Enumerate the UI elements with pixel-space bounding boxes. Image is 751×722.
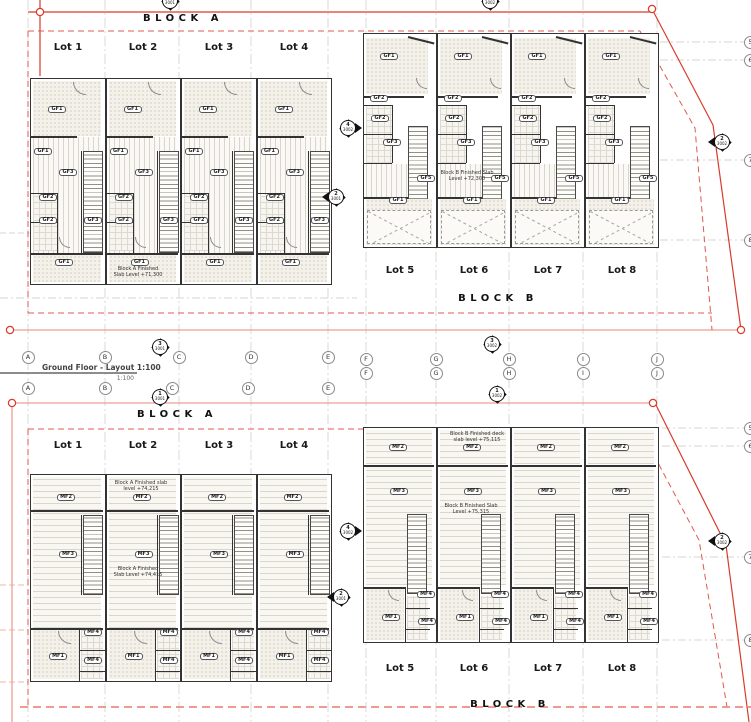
interior-wall xyxy=(79,630,80,681)
interior-wall xyxy=(107,253,179,255)
interior-wall xyxy=(540,105,541,163)
room-tag: GF2 xyxy=(39,194,57,201)
interior-wall xyxy=(208,193,209,253)
interior-wall xyxy=(438,134,466,135)
room-area xyxy=(33,81,101,136)
interior-wall xyxy=(479,587,480,642)
room-area xyxy=(184,81,252,136)
room-tag: MF2 xyxy=(208,494,226,501)
lot-label: Lot 3 xyxy=(197,440,241,451)
interior-wall xyxy=(308,151,309,254)
interior-wall xyxy=(157,515,158,595)
room-tag: MF4 xyxy=(492,618,510,625)
block-b-label-ground: BLOCK B xyxy=(433,293,563,304)
floor-plan-sheet: BLOCK A BLOCK B BLOCK A BLOCK B Ground F… xyxy=(0,0,751,722)
interior-wall xyxy=(512,105,540,106)
sheet-number: 3002 xyxy=(343,531,353,536)
room-tag: GF2 xyxy=(593,115,611,122)
interior-wall xyxy=(627,587,628,642)
room-tag: GF2 xyxy=(266,217,284,224)
room-tag: MF4 xyxy=(235,629,253,636)
room-tag: GF1 xyxy=(611,197,629,204)
room-tag: MF4 xyxy=(491,591,509,598)
grid-bubble-num-7: 7 xyxy=(744,551,751,564)
interior-wall xyxy=(31,253,103,255)
interior-wall xyxy=(57,193,58,253)
room-tag: GF2 xyxy=(115,217,133,224)
interior-wall xyxy=(364,587,406,589)
block-a-label-ground: BLOCK A xyxy=(118,13,248,24)
section-marker-bubble: 13001 xyxy=(152,389,168,405)
interior-wall xyxy=(155,650,181,651)
room-tag: GF2 xyxy=(371,115,389,122)
view-title-underline xyxy=(0,372,137,374)
grid-bubble-F: F xyxy=(360,353,373,366)
block-a-label-first: BLOCK A xyxy=(112,409,242,420)
interior-wall xyxy=(586,163,614,164)
lot-label: Lot 6 xyxy=(452,663,496,674)
block-b-label-first: BLOCK B xyxy=(445,699,575,710)
staircase xyxy=(234,515,254,595)
interior-wall xyxy=(438,587,480,589)
room-tag: MF1 xyxy=(125,653,143,660)
staircase xyxy=(481,514,501,594)
room-tag: GF3 xyxy=(160,217,178,224)
room-tag: GF1 xyxy=(463,197,481,204)
deck-note-first-block-a: Block A Finished slab level +74,215 xyxy=(108,480,174,493)
room-tag: MF1 xyxy=(530,614,548,621)
dwelling-unit: GF1GF2GF2GF3GF5GF1 xyxy=(363,33,437,248)
room-tag: MF4 xyxy=(311,629,329,636)
interior-wall xyxy=(627,629,652,630)
dwelling-unit: MF2MF3MF4MF1MF4 xyxy=(30,474,106,682)
room-tag: GF1 xyxy=(185,148,203,155)
grid-bubble-E: E xyxy=(322,351,335,364)
room-tag: GF1 xyxy=(110,148,128,155)
deck-note-first-block-b: Block B Finished deck slab level +75,115 xyxy=(444,431,510,444)
interior-wall xyxy=(107,136,153,138)
interior-wall xyxy=(512,134,540,135)
room-tag: GF2 xyxy=(518,95,536,102)
room-tag: MF2 xyxy=(284,494,302,501)
parking-bay xyxy=(589,210,653,244)
interior-wall xyxy=(31,136,77,138)
section-marker: 23002 xyxy=(712,531,732,551)
grid-bubble-B: B xyxy=(99,351,112,364)
room-tag: MF3 xyxy=(390,488,408,495)
room-tag: GF2 xyxy=(266,194,284,201)
grid-bubble-num-7: 7 xyxy=(744,154,751,167)
sheet-number: 3002 xyxy=(492,394,502,399)
lot-label: Lot 4 xyxy=(272,42,316,53)
interior-wall xyxy=(230,650,256,651)
room-tag: GF1 xyxy=(261,148,279,155)
interior-wall xyxy=(614,105,615,163)
room-tag: MF2 xyxy=(463,444,481,451)
sheet-number: 3002 xyxy=(343,128,353,133)
lot-label: Lot 1 xyxy=(46,42,90,53)
section-marker: 13002 xyxy=(487,384,507,404)
dwelling-unit: MF2MF3MF4MF1MF4 xyxy=(181,474,257,682)
parking-bay xyxy=(367,210,431,244)
interior-wall xyxy=(155,630,156,681)
grid-bubble-num-8: 8 xyxy=(744,234,751,247)
slab-note-ground-block-b: Block B Finished Slab Level +72,300 xyxy=(434,170,500,183)
staircase xyxy=(310,515,330,595)
lot-label: Lot 1 xyxy=(46,440,90,451)
room-tag: GF3 xyxy=(135,169,153,176)
sheet-number: 3001 xyxy=(155,397,165,402)
interior-wall xyxy=(586,134,614,135)
interior-wall xyxy=(81,151,82,254)
room-tag: GF1 xyxy=(537,197,555,204)
grid-bubble-num-5: 5 xyxy=(744,36,751,49)
grid-bubble-I: I xyxy=(577,353,590,366)
staircase xyxy=(408,126,428,200)
room-tag: MF4 xyxy=(160,629,178,636)
section-marker: 23002 xyxy=(712,132,732,152)
room-tag: MF4 xyxy=(566,618,584,625)
grid-bubble-C: C xyxy=(173,351,186,364)
room-tag: MF4 xyxy=(235,657,253,664)
grid-bubble-num-6: 6 xyxy=(744,54,751,67)
dwelling-unit: GF1GF2GF2GF3GF5GF1 xyxy=(437,33,511,248)
room-tag: GF1 xyxy=(48,106,66,113)
slab-note-ground-block-a: Block A Finished Slab Level +71,300 xyxy=(105,266,171,279)
interior-wall xyxy=(479,608,504,609)
dwelling-unit: MF2MF3MF4MF1MF4 xyxy=(363,427,437,643)
grid-bubble-num-6: 6 xyxy=(744,440,751,453)
section-marker: 33001 xyxy=(160,0,180,11)
interior-wall xyxy=(306,671,332,672)
staircase xyxy=(83,151,103,253)
room-tag: MF4 xyxy=(418,618,436,625)
grid-bubble-D: D xyxy=(242,382,255,395)
dwelling-unit: MF2MF3MF4MF1MF4 xyxy=(257,474,333,682)
room-tag: GF3 xyxy=(605,139,623,146)
dwelling-unit: GF1GF2GF2GF3GF5GF1 xyxy=(585,33,659,248)
grid-bubble-J: J xyxy=(651,353,664,366)
room-tag: GF1 xyxy=(380,53,398,60)
grid-bubble-num-5: 5 xyxy=(744,422,751,435)
grid-bubble-A: A xyxy=(22,351,35,364)
slab-note-first-block-b: Block B Finished Slab Level +75,315 xyxy=(438,503,504,516)
section-marker: 33002 xyxy=(480,0,500,11)
room-tag: MF3 xyxy=(286,551,304,558)
room-tag: MF1 xyxy=(456,614,474,621)
section-marker-bubble: 23002 xyxy=(714,533,730,549)
room-tag: MF1 xyxy=(604,614,622,621)
room-tag: MF3 xyxy=(464,488,482,495)
room-tag: GF2 xyxy=(190,217,208,224)
interior-wall xyxy=(364,163,392,164)
room-tag: GF3 xyxy=(311,217,329,224)
staircase xyxy=(482,126,502,200)
section-marker-bubble: 13002 xyxy=(489,386,505,402)
room-tag: GF1 xyxy=(199,106,217,113)
interior-wall xyxy=(405,629,430,630)
room-tag: MF1 xyxy=(49,653,67,660)
sheet-number: 3002 xyxy=(717,541,727,546)
grid-bubble-F: F xyxy=(360,367,373,380)
room-tag: GF1 xyxy=(206,259,224,266)
room-tag: GF3 xyxy=(286,169,304,176)
interior-wall xyxy=(405,587,406,642)
room-tag: GF5 xyxy=(639,175,657,182)
grid-bubble-J: J xyxy=(651,367,664,380)
room-tag: GF3 xyxy=(457,139,475,146)
sheet-number: 3002 xyxy=(485,1,495,6)
lot-label: Lot 4 xyxy=(272,440,316,451)
dwelling-unit: GF1GF1GF3GF2GF2GF3GF1 xyxy=(181,78,257,285)
room-tag: MF1 xyxy=(382,614,400,621)
sheet-number: 3002 xyxy=(487,344,497,349)
interior-wall xyxy=(364,105,392,106)
interior-wall xyxy=(133,193,134,253)
lot-label: Lot 6 xyxy=(452,265,496,276)
parking-bay xyxy=(441,210,505,244)
section-marker: 43002 xyxy=(338,118,358,138)
room-area xyxy=(588,164,630,197)
sheet-number: 3001 xyxy=(336,597,346,602)
section-marker-bubble: 23002 xyxy=(714,134,730,150)
interior-wall xyxy=(405,608,430,609)
staircase xyxy=(234,151,254,253)
interior-wall xyxy=(627,608,652,609)
room-tag: GF2 xyxy=(39,217,57,224)
room-tag: MF4 xyxy=(639,591,657,598)
room-area xyxy=(260,81,328,136)
interior-wall xyxy=(79,671,105,672)
grid-bubble-H: H xyxy=(503,353,516,366)
room-tag: MF2 xyxy=(537,444,555,451)
interior-wall xyxy=(79,650,105,651)
room-tag: MF2 xyxy=(57,494,75,501)
room-tag: GF2 xyxy=(190,194,208,201)
room-tag: GF1 xyxy=(131,259,149,266)
interior-wall xyxy=(230,671,256,672)
room-tag: GF2 xyxy=(370,95,388,102)
room-tag: GF2 xyxy=(444,95,462,102)
lot-label: Lot 3 xyxy=(197,42,241,53)
room-tag: GF5 xyxy=(417,175,435,182)
grid-bubble-A: A xyxy=(22,382,35,395)
room-tag: GF2 xyxy=(519,115,537,122)
interior-wall xyxy=(553,587,554,642)
interior-wall xyxy=(182,253,254,255)
room-tag: MF3 xyxy=(135,551,153,558)
sheet-number: 3001 xyxy=(331,197,341,202)
room-tag: GF2 xyxy=(115,194,133,201)
section-marker: 33002 xyxy=(482,334,502,354)
interior-wall xyxy=(306,650,332,651)
grid-bubble-D: D xyxy=(245,351,258,364)
room-tag: MF2 xyxy=(133,494,151,501)
dwelling-unit: GF1GF1GF3GF2GF2GF3GF1 xyxy=(257,78,333,285)
lot-label: Lot 5 xyxy=(378,265,422,276)
section-marker-bubble: 33001 xyxy=(152,339,168,355)
lot-label: Lot 7 xyxy=(526,265,570,276)
dwelling-unit: GF1GF1GF3GF2GF2GF3GF1 xyxy=(30,78,106,285)
room-tag: GF1 xyxy=(34,148,52,155)
section-arrow-right xyxy=(355,123,362,133)
staircase xyxy=(629,514,649,594)
room-area xyxy=(514,164,556,197)
room-tag: MF3 xyxy=(59,551,77,558)
grid-bubble-G: G xyxy=(430,353,443,366)
room-tag: MF4 xyxy=(160,657,178,664)
section-marker: 13001 xyxy=(150,387,170,407)
interior-wall xyxy=(553,629,578,630)
lot-label: Lot 2 xyxy=(121,42,165,53)
room-tag: GF5 xyxy=(565,175,583,182)
section-marker: 23001 xyxy=(326,187,346,207)
room-area xyxy=(366,164,408,197)
lot-label: Lot 2 xyxy=(121,440,165,451)
grid-bubble-num-8: 8 xyxy=(744,634,751,647)
dwelling-unit: MF2MF3MF4MF1MF4 xyxy=(511,427,585,643)
room-tag: GF3 xyxy=(210,169,228,176)
interior-wall xyxy=(479,629,504,630)
lot-label: Lot 7 xyxy=(526,663,570,674)
room-tag: MF2 xyxy=(611,444,629,451)
staircase xyxy=(83,515,103,595)
room-tag: GF2 xyxy=(592,95,610,102)
interior-wall xyxy=(232,151,233,254)
grid-bubble-I: I xyxy=(577,367,590,380)
room-tag: GF3 xyxy=(235,217,253,224)
section-marker: 33001 xyxy=(150,337,170,357)
interior-wall xyxy=(586,105,614,106)
staircase xyxy=(556,126,576,200)
room-tag: MF1 xyxy=(200,653,218,660)
interior-wall xyxy=(232,515,233,595)
interior-wall xyxy=(512,587,554,589)
grid-bubble-E: E xyxy=(322,382,335,395)
room-tag: MF3 xyxy=(538,488,556,495)
view-title: Ground Floor - Layout 1:100 xyxy=(42,363,161,372)
room-tag: MF4 xyxy=(84,629,102,636)
room-tag: MF4 xyxy=(640,618,658,625)
section-marker-bubble: 23001 xyxy=(328,189,344,205)
staircase xyxy=(630,126,650,200)
interior-wall xyxy=(466,105,467,163)
room-tag: GF1 xyxy=(282,259,300,266)
section-marker-bubble: 33002 xyxy=(482,0,498,9)
interior-wall xyxy=(81,515,82,595)
section-arrow-right xyxy=(355,526,362,536)
view-scale: 1:100 xyxy=(100,375,134,382)
lot-label: Lot 8 xyxy=(600,663,644,674)
interior-wall xyxy=(155,671,181,672)
interior-wall xyxy=(306,630,307,681)
lot-label: Lot 8 xyxy=(600,265,644,276)
room-tag: GF1 xyxy=(55,259,73,266)
room-tag: GF1 xyxy=(528,53,546,60)
section-marker-bubble: 43002 xyxy=(340,523,356,539)
grid-bubble-B: B xyxy=(99,382,112,395)
sheet-number: 3001 xyxy=(165,1,175,6)
parking-bay xyxy=(515,210,579,244)
interior-wall xyxy=(364,134,392,135)
room-tag: MF4 xyxy=(565,591,583,598)
staircase xyxy=(407,514,427,594)
interior-wall xyxy=(258,136,304,138)
room-tag: GF3 xyxy=(84,217,102,224)
dwelling-unit: GF1GF1GF3GF2GF2GF3GF1 xyxy=(106,78,182,285)
interior-wall xyxy=(438,105,466,106)
interior-wall xyxy=(182,136,228,138)
section-marker: 43002 xyxy=(338,521,358,541)
section-marker-bubble: 23001 xyxy=(333,589,349,605)
room-area xyxy=(109,81,177,136)
interior-wall xyxy=(553,608,578,609)
grid-bubble-G: G xyxy=(430,367,443,380)
interior-wall xyxy=(512,163,540,164)
grid-bubble-H: H xyxy=(503,367,516,380)
room-tag: MF4 xyxy=(311,657,329,664)
interior-wall xyxy=(258,253,330,255)
room-tag: MF4 xyxy=(84,657,102,664)
room-tag: MF3 xyxy=(210,551,228,558)
room-tag: GF2 xyxy=(445,115,463,122)
room-tag: GF1 xyxy=(275,106,293,113)
room-tag: GF3 xyxy=(59,169,77,176)
section-marker-bubble: 43002 xyxy=(340,120,356,136)
room-tag: GF1 xyxy=(454,53,472,60)
sheet-number: 3001 xyxy=(155,347,165,352)
room-tag: MF1 xyxy=(276,653,294,660)
staircase xyxy=(159,151,179,253)
room-tag: GF1 xyxy=(389,197,407,204)
dwelling-unit: MF2MF3MF4MF1MF4 xyxy=(437,427,511,643)
section-marker-bubble: 33001 xyxy=(162,0,178,9)
dwelling-unit: GF1GF2GF2GF3GF5GF1 xyxy=(511,33,585,248)
room-tag: GF1 xyxy=(124,106,142,113)
room-tag: GF1 xyxy=(602,53,620,60)
interior-wall xyxy=(284,193,285,253)
room-tag: MF2 xyxy=(389,444,407,451)
section-marker-bubble: 33002 xyxy=(484,336,500,352)
interior-wall xyxy=(157,151,158,254)
room-tag: GF3 xyxy=(531,139,549,146)
room-tag: MF4 xyxy=(417,591,435,598)
interior-wall xyxy=(308,515,309,595)
interior-wall xyxy=(392,105,393,163)
room-tag: GF3 xyxy=(383,139,401,146)
staircase xyxy=(159,515,179,595)
section-marker: 23001 xyxy=(331,587,351,607)
slab-note-first-block-a: Block A Finished Slab Level +74,415 xyxy=(105,566,171,579)
interior-wall xyxy=(586,587,628,589)
interior-wall xyxy=(230,630,231,681)
staircase xyxy=(555,514,575,594)
lot-label: Lot 5 xyxy=(378,663,422,674)
sheet-number: 3002 xyxy=(717,142,727,147)
room-tag: MF3 xyxy=(612,488,630,495)
dwelling-unit: MF2MF3MF4MF1MF4 xyxy=(585,427,659,643)
interior-wall xyxy=(438,163,466,164)
